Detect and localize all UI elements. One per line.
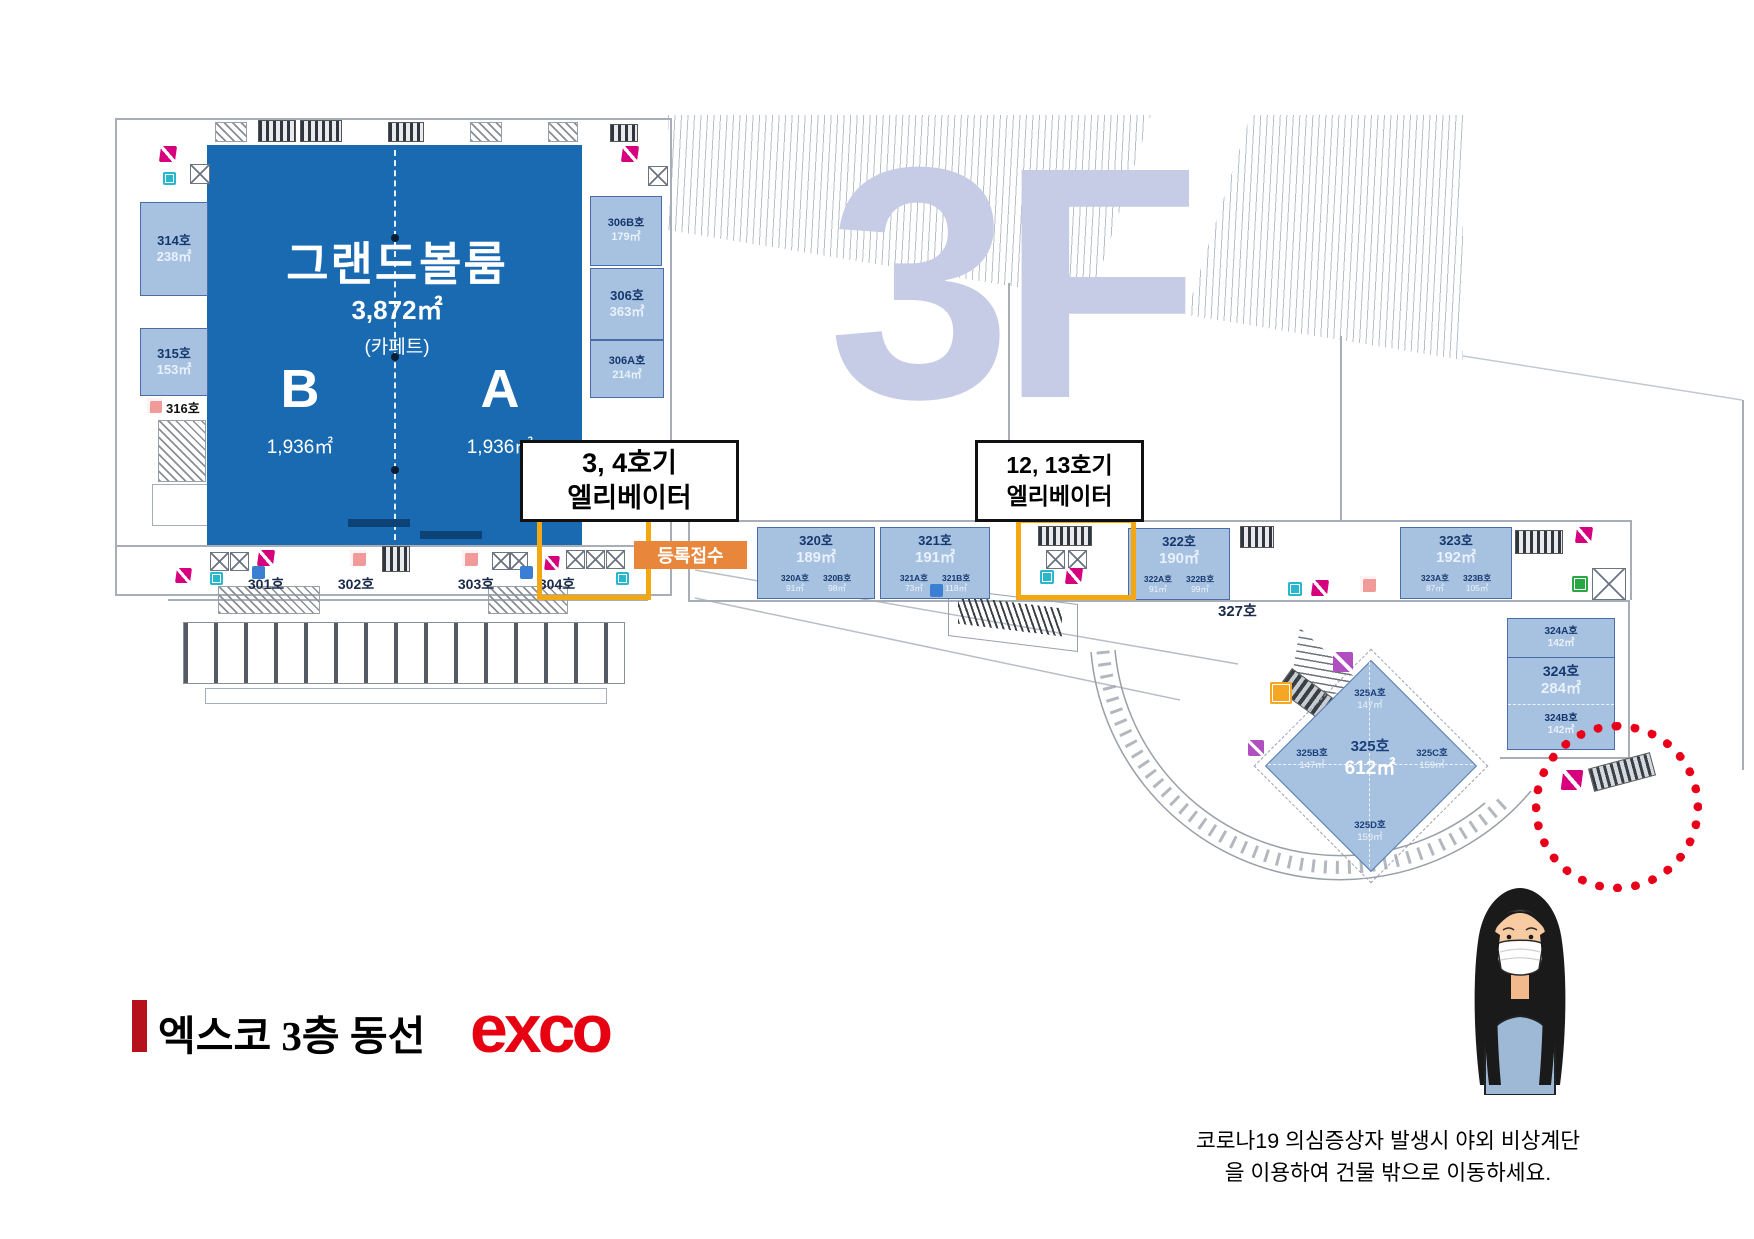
floor-plan-canvas: 3F 그랜드볼룸 3,872㎡ (카페트) B 1,936㎡ A 1,936㎡ …: [0, 0, 1754, 1239]
hvac-unit: [470, 122, 502, 142]
callout-elevator-34: 3, 4호기 엘리베이터: [520, 440, 739, 522]
hvac-unit: [215, 122, 247, 142]
band-bottom-wall: [688, 600, 1630, 602]
elevator-shaft-icon: [1592, 568, 1626, 600]
restroom-icon: [350, 550, 366, 566]
facility-icon: [1248, 740, 1264, 756]
hvac-grill: [300, 120, 342, 142]
terrace-colonnade: [183, 622, 625, 684]
ballroom-stage-bar: [420, 531, 482, 539]
stairs-icon: [163, 172, 176, 185]
stair-grill: [382, 546, 410, 572]
room-306: 306호 363㎡: [590, 268, 664, 340]
restroom-icon: [1360, 576, 1376, 592]
room-314: 314호 238㎡: [140, 202, 208, 296]
info-icon: [1270, 682, 1292, 704]
elevator-shaft-icon: [492, 552, 510, 570]
ballroom-name: 그랜드볼룸: [286, 228, 508, 294]
hvac-grill: [610, 124, 638, 142]
elevator-shaft-icon: [566, 550, 585, 569]
escalator-icon: [1575, 527, 1593, 543]
escalator-icon: [1065, 568, 1083, 584]
elevator-shaft-icon: [606, 550, 625, 569]
ballroom-note: (카페트): [364, 332, 429, 359]
emergency-stair-highlight-circle: [1532, 722, 1702, 892]
escalator-icon: [544, 556, 560, 570]
emergency-exit-icon: [1572, 576, 1588, 592]
stairs-icon: [1040, 570, 1054, 584]
escalator-icon: [257, 550, 275, 566]
room-325-label: 325호 612㎡: [1325, 738, 1415, 781]
ballroom-stage-bar: [348, 519, 410, 527]
escalator-icon: [1311, 580, 1329, 596]
stair-grill: [1038, 526, 1092, 546]
exit-stair-icon: [520, 566, 533, 579]
room-327-label: 327호: [1218, 600, 1257, 621]
stairwell-hatch: [158, 420, 206, 482]
stairs-icon: [210, 572, 223, 585]
room-315: 315호 153㎡: [140, 328, 208, 396]
elevator-shaft-icon: [210, 552, 229, 571]
covid-notice: 코로나19 의심증상자 발생시 야외 비상계단 을 이용하여 건물 밖으로 이동…: [1128, 1125, 1648, 1190]
room-301-label: 301호: [248, 574, 284, 594]
room-306a: 306A호 214㎡: [590, 340, 664, 398]
room-302-label: 302호: [338, 574, 374, 594]
divider-dot: [391, 466, 399, 474]
room-316-label: 316호: [166, 398, 200, 417]
elevator-shaft-icon: [230, 552, 249, 571]
room-303-label: 303호: [458, 574, 494, 594]
registration-desk-label: 등록접수: [634, 541, 747, 569]
room-322: 322호 190㎡ 322A호91㎡ 322B호99㎡: [1128, 528, 1230, 600]
elevator-shaft-icon: [648, 166, 668, 186]
band-end-wall: [1630, 520, 1632, 600]
masked-person-illustration: [1455, 880, 1585, 1095]
hall-wall: [1340, 336, 1342, 520]
ballroom-section-a: A: [481, 362, 520, 416]
escalator-icon: [175, 568, 192, 583]
ballroom-section-b: B: [281, 362, 320, 416]
callout-elevator-1213: 12, 13호기 엘리베이터: [975, 440, 1144, 522]
title-accent-bar: [132, 1000, 147, 1052]
ballroom-area: 3,872㎡: [351, 290, 442, 327]
escalator-icon: [159, 146, 177, 162]
room-320: 320호 189㎡ 320A호91㎡ 320B호98㎡: [757, 527, 875, 599]
stair-grill: [1515, 530, 1563, 554]
elevator-shaft-icon: [1068, 550, 1087, 569]
escalator-direction-icon: [930, 584, 943, 597]
stair-grill: [1240, 526, 1274, 548]
elevator-shaft-icon: [586, 550, 605, 569]
restroom-icon: [147, 398, 162, 413]
hvac-grill: [388, 122, 424, 142]
room-325d-label: 325D호 159㎡: [1325, 820, 1415, 844]
elevator-shaft-icon: [1046, 550, 1065, 569]
escalator-icon: [621, 146, 639, 162]
terrace-base: [205, 688, 607, 704]
exco-logo: exco: [470, 995, 609, 1063]
room-306b: 306B호 179㎡: [590, 196, 662, 266]
restroom-icon: [462, 550, 478, 566]
facility-icon: [1333, 652, 1353, 672]
hvac-unit: [548, 122, 578, 142]
band-top-wall: [688, 520, 1630, 522]
service-room-outline: [152, 484, 212, 526]
outer-east-wall: [1742, 400, 1744, 770]
page-title: 엑스코 3층 동선: [158, 1002, 425, 1062]
stairs-icon: [1288, 582, 1302, 596]
hvac-grill: [258, 120, 296, 142]
elevator-shaft-icon: [190, 164, 210, 184]
ballroom-section-b-area: 1,936㎡: [267, 432, 334, 459]
room-325a-label: 325A호 147㎡: [1325, 688, 1415, 712]
room-323: 323호 192㎡ 323A호87㎡ 323B호105㎡: [1400, 527, 1512, 599]
